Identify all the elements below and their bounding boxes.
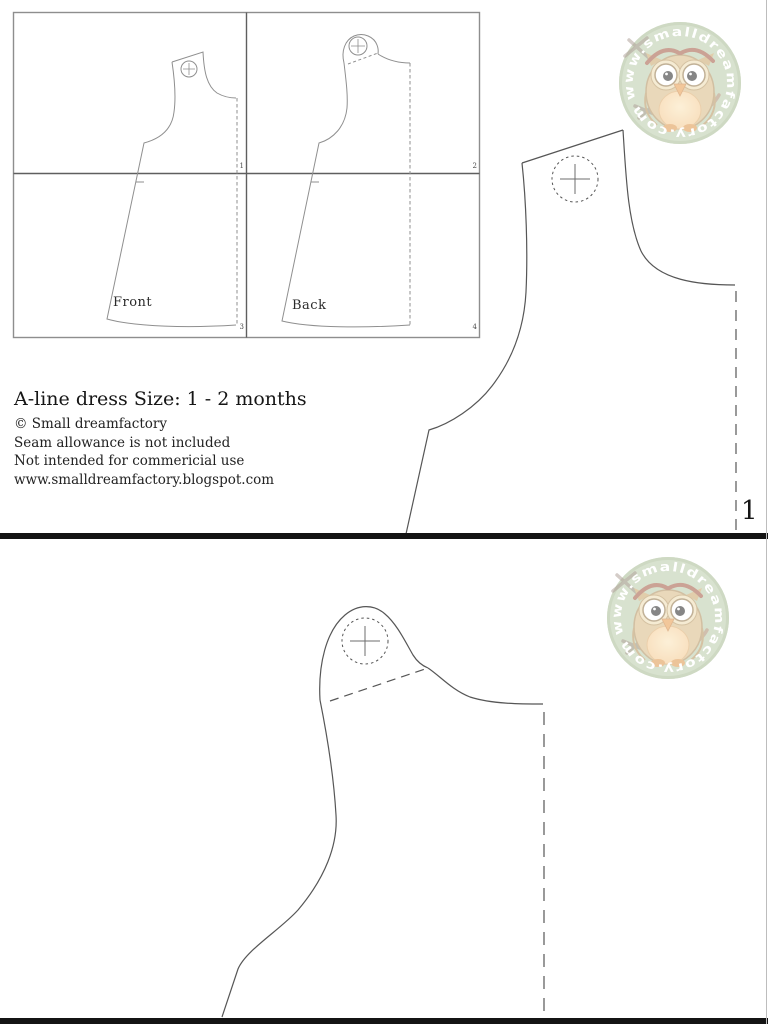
front-grain-cross xyxy=(560,164,590,194)
pattern-title: A-line dress Size: 1 - 2 months xyxy=(14,388,374,410)
diagram-tile-number-1: 1 xyxy=(230,162,244,170)
seam-allowance-note: Seam allowance is not included xyxy=(14,434,374,453)
back-grain-cross xyxy=(350,626,380,656)
sheet-number: 1 xyxy=(741,496,758,526)
front-armhole-side-seam xyxy=(406,163,527,534)
diagram-tile-number-2: 2 xyxy=(463,162,477,170)
fullsize-front-piece xyxy=(406,130,736,534)
website-url: www.smalldreamfactory.blogspot.com xyxy=(14,471,374,490)
back-neck-curve xyxy=(428,668,543,704)
copyright-line: © Small dreamfactory xyxy=(14,415,374,434)
usage-note: Not intended for commericial use xyxy=(14,452,374,471)
back-shoulder-dash-line xyxy=(330,668,428,701)
smalldreamfactory-logo: www.smalldreamfactory.com xyxy=(603,553,733,683)
page-bottom-bar xyxy=(0,1018,768,1024)
diagram-tile-number-4: 4 xyxy=(463,323,477,331)
mini-back-shoulder-dash xyxy=(348,53,378,64)
pattern-info-block: A-line dress Size: 1 - 2 months © Small … xyxy=(14,388,374,489)
fullsize-back-piece xyxy=(222,607,544,1017)
back-armhole-side-seam xyxy=(222,700,336,1017)
front-piece-label: Front xyxy=(113,295,152,310)
smalldreamfactory-logo: www.smalldreamfactory.com xyxy=(615,18,745,148)
mini-back-piece xyxy=(282,35,410,327)
mini-front-piece xyxy=(107,52,237,327)
back-piece-label: Back xyxy=(292,298,326,313)
pattern-linework xyxy=(0,0,768,1024)
page-divider-bar xyxy=(0,533,768,539)
layout-diagram xyxy=(14,13,480,338)
diagram-tile-number-3: 3 xyxy=(230,323,244,331)
pattern-document: www.smalldreamfactory.com xyxy=(0,0,768,1024)
front-neck-curve xyxy=(623,130,735,285)
front-shoulder-line xyxy=(522,130,623,163)
scan-edge-line xyxy=(766,0,767,1024)
